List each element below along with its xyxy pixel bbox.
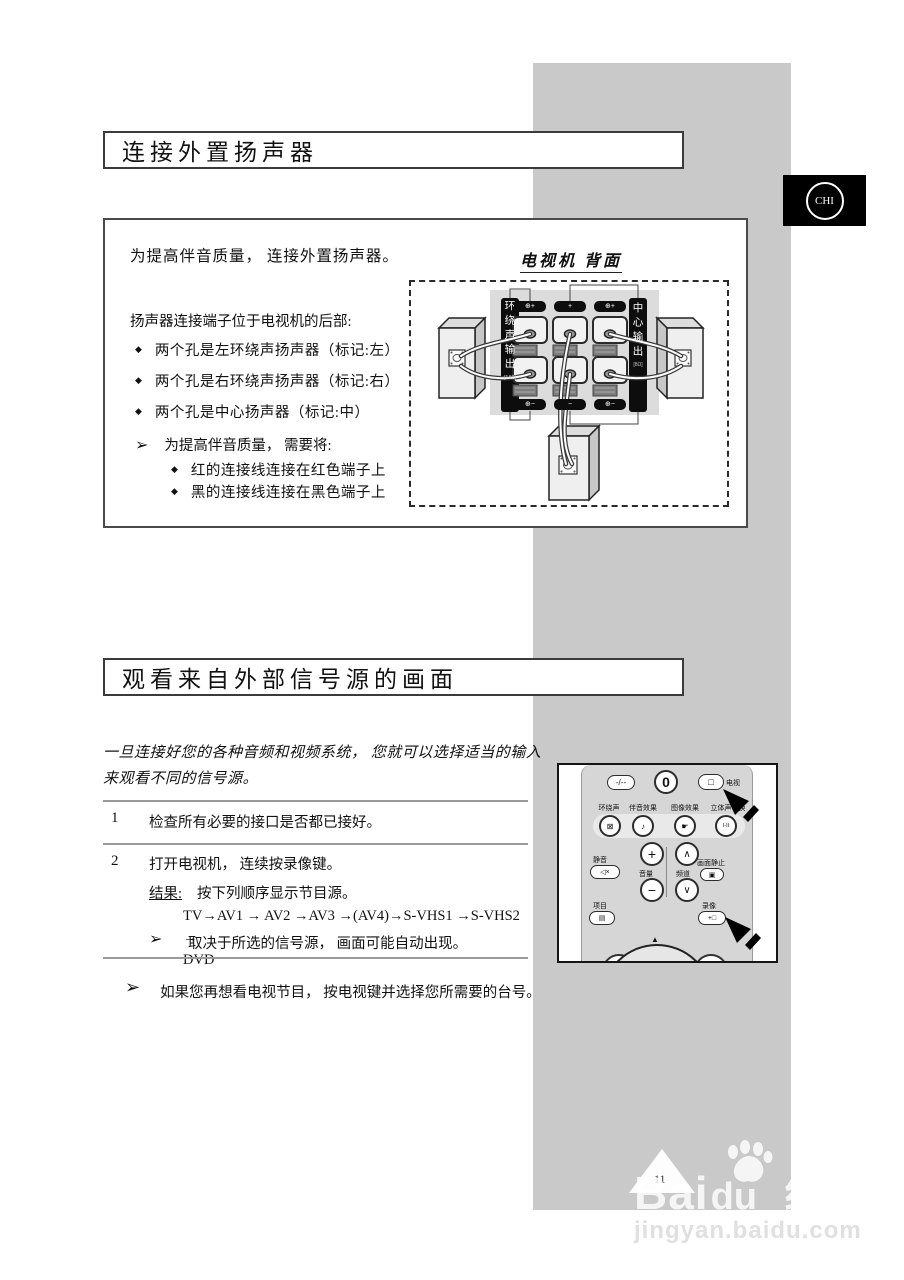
sound-effect-button: ♪ (632, 815, 654, 837)
tv-button-icon: □ (708, 777, 713, 787)
section1-title: 连接外置扬声器 (122, 133, 318, 167)
baidu-watermark: Bai du 经验 jingyan.baidu.com (634, 1162, 875, 1245)
list-item: ◆ 两个孔是中心扬声器（标记:中） (135, 396, 399, 427)
list-item: ◆ 黑的连接线连接在黑色端子上 (171, 480, 386, 502)
remote-photo: -/-- 0 □ 电视 环绕声 伴音效果 图像效果 立体声切换 ⊠ ♪ ☛ I-… (559, 765, 776, 961)
chevron-down-icon: ∨ (683, 885, 690, 896)
volume-down-button: − (640, 878, 664, 902)
channel-up-button: ∧ (675, 842, 699, 866)
chi-circle-icon: CHI (806, 182, 844, 220)
sound-effect-label: 伴音效果 (623, 803, 663, 813)
record-button: +□ (698, 911, 726, 925)
section2-title-box: 观看来自外部信号源的画面 (103, 658, 684, 696)
terminal-polarity-label: ⊕− (594, 399, 626, 410)
freeze-label: 画面静止 (697, 858, 725, 868)
terminal-polarity-label: ⊕− (514, 399, 546, 410)
nav-up-triangle-icon: ▲ (651, 935, 659, 944)
menu-button: ▤ (589, 911, 615, 925)
divider (103, 957, 528, 959)
record-icon: +□ (708, 915, 716, 922)
watermark-brand-cn: 经验 (785, 1174, 875, 1214)
picture-effect-button: ☛ (674, 815, 696, 837)
terminal-polarity-label: ⊕+ (514, 301, 546, 312)
menu-label: 项目 (593, 901, 607, 911)
section1-note: ➢ 为提高伴音质量， 需要将: ◆ 红的连接线连接在红色端子上 ◆ 黑的连接线连… (135, 434, 386, 502)
mute-label: 静音 (593, 855, 607, 865)
section1-bullet-list: ◆ 两个孔是左环绕声扬声器（标记:左） ◆ 两个孔是右环绕声扬声器（标记:右） … (135, 334, 399, 427)
volume-up-button: + (640, 842, 664, 866)
picture-effect-label: 图像效果 (665, 803, 705, 813)
note-arrow-icon: ➢ (125, 977, 140, 998)
section2-intro: 一旦连接好您的各种音频和视频系统， 您就可以选择适当的输入来观看不同的信号源。 (103, 741, 553, 792)
watermark-brand-du: du (711, 1180, 757, 1214)
channel-down-button: ∨ (675, 878, 699, 902)
plus-icon: + (648, 846, 656, 862)
step-number: 1 (111, 810, 119, 827)
digit-zero-button: 0 (654, 770, 678, 794)
diagram-caption: 电视机 背面 (520, 247, 622, 273)
tv-button-label: 电视 (726, 778, 740, 788)
diamond-bullet-icon: ◆ (171, 486, 178, 497)
section1-location-text: 扬声器连接端子位于电视机的后部: (130, 310, 352, 331)
note-arrow-icon: ➢ (135, 435, 148, 455)
terminal-polarity-label: ⊕+ (594, 301, 626, 312)
section1-intro: 为提高伴音质量， 连接外置扬声器。 (130, 244, 406, 270)
record-label: 录像 (702, 901, 716, 911)
remote-bottom-shapes (559, 765, 776, 961)
divider (666, 847, 667, 897)
sound-effect-icon: ♪ (641, 822, 645, 831)
step-note-text: 取决于所选的信号源， 画面可能自动出现。 (188, 932, 467, 953)
tv-back-diagram: 环绕声输出 [1&2] 中心输出 [8Ω] ⊕+ + ⊕+ ⊕− − ⊕− (409, 280, 729, 507)
section1-content-box: 为提高伴音质量， 连接外置扬声器。 扬声器连接端子位于电视机的后部: ◆ 两个孔… (103, 218, 748, 528)
picture-effect-icon: ☛ (681, 822, 688, 831)
surround-icon: ⊠ (607, 822, 614, 831)
divider (103, 800, 528, 802)
watermark-url: jingyan.baidu.com (634, 1217, 875, 1245)
remote-control-figure: -/-- 0 □ 电视 环绕声 伴音效果 图像效果 立体声切换 ⊠ ♪ ☛ I-… (557, 763, 778, 963)
note-arrow-icon: ➢ (149, 929, 162, 949)
list-item: ◆ 两个孔是左环绕声扬声器（标记:左） (135, 334, 399, 365)
freeze-button: ▣ (700, 868, 724, 881)
terminal-polarity-label: + (554, 301, 586, 312)
stereo-switch-button: I-II (715, 815, 737, 837)
watermark-brand-bai: Bai (634, 1173, 709, 1214)
tv-button: □ (698, 774, 724, 790)
footer-note: ➢ 如果您再想看电视节目， 按电视键并选择您所需要的台号。 (125, 977, 541, 1002)
chevron-up-icon: ∧ (683, 849, 690, 860)
menu-icon: ▤ (599, 914, 606, 922)
section2-title: 观看来自外部信号源的画面 (122, 660, 458, 694)
digit-mode-button: -/-- (607, 775, 635, 790)
stereo-switch-label: 立体声切换 (705, 803, 751, 813)
result-label: 结果: (149, 882, 182, 903)
result-text: 按下列顺序显示节目源。 (197, 882, 357, 903)
diamond-bullet-icon: ◆ (135, 406, 142, 417)
surround-output-label: 环绕声输出 [1&2] (501, 300, 519, 410)
mute-button: ◁× (590, 865, 620, 879)
diamond-bullet-icon: ◆ (135, 344, 142, 355)
minus-icon: − (648, 882, 656, 898)
step-number: 2 (111, 853, 119, 870)
freeze-icon: ▣ (709, 871, 716, 879)
step-text: 打开电视机， 连续按录像键。 (149, 853, 341, 874)
surround-button: ⊠ (599, 815, 621, 837)
language-badge: CHI (783, 175, 866, 226)
step-text: 检查所有必要的接口是否都已接好。 (149, 811, 381, 832)
language-badge-text: CHI (815, 195, 834, 207)
list-item: ◆ 两个孔是右环绕声扬声器（标记:右） (135, 365, 399, 396)
list-item: ◆ 红的连接线连接在红色端子上 (171, 458, 386, 480)
stereo-switch-icon: I-II (723, 823, 729, 829)
steps-table: 1 检查所有必要的接口是否都已接好。 2 打开电视机， 连续按录像键。 结果: … (103, 800, 528, 960)
divider (103, 843, 528, 845)
mute-icon: ◁× (600, 868, 609, 876)
diamond-bullet-icon: ◆ (171, 464, 178, 475)
center-output-label: 中心输出 [8Ω] (629, 302, 647, 410)
section1-title-box: 连接外置扬声器 (103, 131, 684, 169)
speaker-wiring-drawing (411, 282, 727, 505)
diamond-bullet-icon: ◆ (135, 375, 142, 386)
terminal-polarity-label: − (554, 399, 586, 410)
